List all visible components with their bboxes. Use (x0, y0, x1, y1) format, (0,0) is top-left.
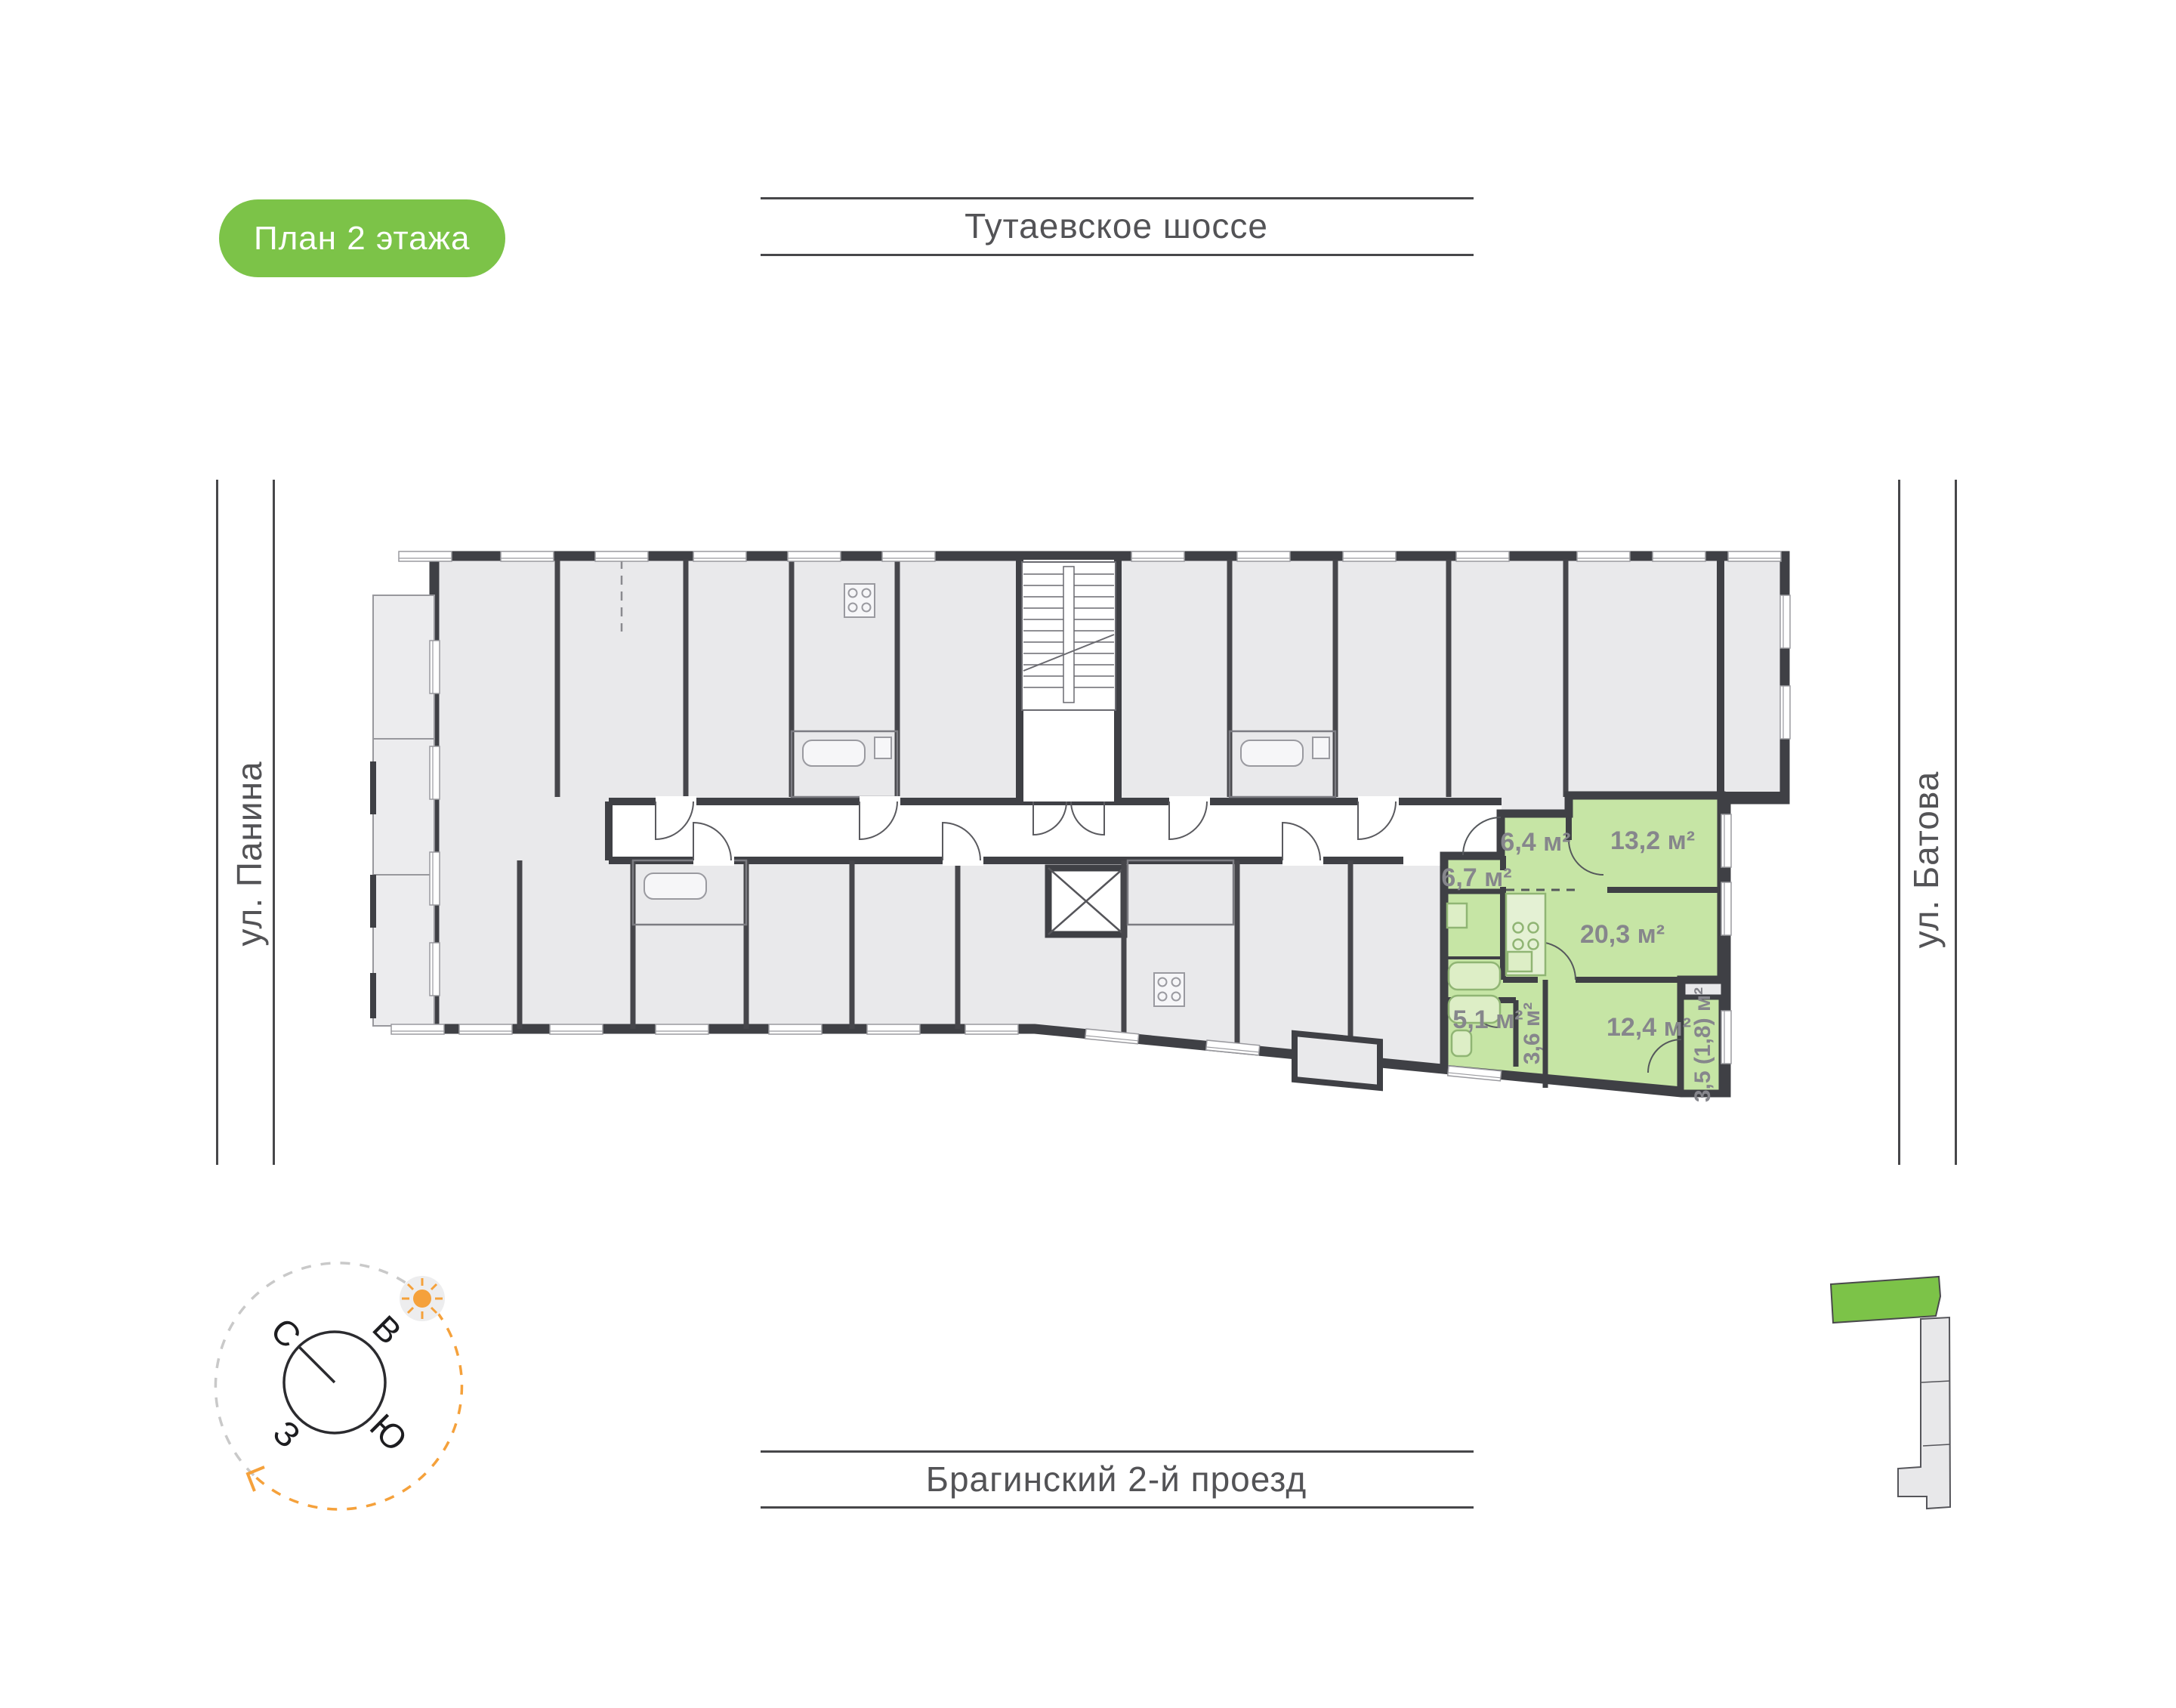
room-area-label-kitchen-living: 20,3 м² (1580, 920, 1665, 949)
floor-plan: 6,4 м² 13,2 м² 6,7 м² 20,3 м² 5,1 м² 3,6… (369, 550, 1834, 1124)
floor-title-badge: План 2 этажа (219, 199, 505, 277)
street-label-bottom: Брагинский 2-й проезд (814, 1459, 1418, 1500)
street-label-left: ул. Панина (219, 752, 279, 956)
minimap-current-building[interactable] (1831, 1277, 1940, 1323)
street-rule-bottom-2 (761, 1506, 1474, 1509)
street-label-top: Тутаевское шоссе (814, 205, 1418, 246)
room-area-label-corridor: 3,6 м² (1520, 1002, 1545, 1064)
elevator-shaft (1048, 868, 1124, 934)
room-area-label-hallway: 6,4 м² (1500, 828, 1570, 857)
compass: С В Ю З (200, 1246, 480, 1526)
room-area-label-bedroom: 13,2 м² (1610, 826, 1695, 855)
room-area-label-bathroom: 5,1 м² (1452, 1005, 1523, 1034)
room-area-label-entry-hall: 6,7 м² (1441, 863, 1511, 892)
floor-title-label: План 2 этажа (254, 220, 471, 258)
street-rule-top-2 (761, 254, 1474, 256)
entrance-porch (1295, 1033, 1380, 1088)
sun-icon (400, 1276, 445, 1321)
minimap-other-buildings (1898, 1317, 1950, 1509)
room-area-label-bedroom-2: 12,4 м² (1607, 1013, 1691, 1042)
street-rule-bottom-1 (761, 1450, 1474, 1453)
central-corridor (609, 801, 1502, 860)
street-rule-left-1 (216, 480, 218, 1165)
floor-plan-page: План 2 этажа Тутаевское шоссе Брагинский… (0, 0, 2176, 1708)
left-balcony-strip (370, 595, 434, 1026)
room-area-label-balcony: 3,5 (1,8) м² (1690, 987, 1715, 1102)
street-rule-top-1 (761, 197, 1474, 199)
stairwell (1020, 556, 1118, 835)
compass-letter-east: В (365, 1308, 409, 1351)
site-plan-minimap (1813, 1254, 1979, 1518)
street-label-right: ул. Батова (1896, 758, 1956, 962)
